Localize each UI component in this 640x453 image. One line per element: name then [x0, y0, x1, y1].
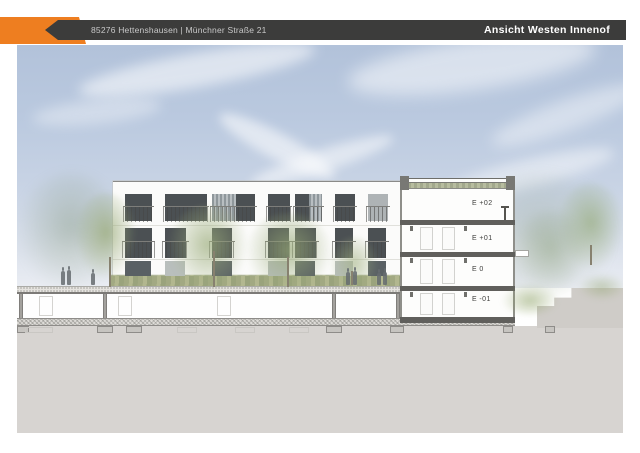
person-silhouette [377, 273, 381, 285]
garage-column [19, 294, 23, 318]
person-silhouette [383, 272, 387, 285]
wall-tick [410, 258, 413, 263]
bush [577, 273, 623, 299]
view-title: Ansicht Westen Innenof [484, 24, 610, 36]
garage-column [332, 294, 336, 318]
tree-trunk [590, 245, 592, 265]
pad-footing [503, 326, 513, 333]
wall-tick [464, 226, 467, 231]
earth-mass [17, 326, 623, 433]
rain-pipe [504, 207, 506, 220]
tree-canopy [245, 213, 333, 295]
wall-tick [464, 258, 467, 263]
header-bar: 85276 Hettenshausen | Münchner Straße 21… [45, 20, 626, 40]
tree-trunk [287, 257, 289, 287]
project-address: 85276 Hettenshausen | Münchner Straße 21 [91, 25, 267, 35]
balcony-railing-upper [333, 206, 357, 222]
garage-column [103, 294, 107, 318]
buried-footing-outline [25, 327, 53, 333]
green-roof-band [402, 182, 513, 189]
person-silhouette [353, 271, 357, 285]
garage-door-outline [39, 296, 53, 316]
buried-footing-outline [235, 327, 255, 333]
wall-tick [464, 292, 467, 297]
person-silhouette [91, 273, 95, 285]
pad-footing [390, 326, 404, 333]
interior-door-outline [420, 293, 433, 315]
tree-canopy [167, 205, 249, 293]
rain-pipe-bracket [501, 206, 509, 208]
elevation-drawing: E +02 E +01 E 0 E -01 [17, 45, 623, 433]
person-silhouette [67, 270, 71, 285]
wall-tick [410, 226, 413, 231]
pad-footing [545, 326, 555, 333]
floor-label-e01: E +01 [472, 235, 514, 242]
floor-slab [400, 286, 515, 291]
bottom-slab [400, 317, 515, 323]
pad-footing [326, 326, 342, 333]
interior-door-outline [420, 227, 433, 250]
garage-door-outline [118, 296, 132, 316]
interior-door-outline [442, 293, 455, 315]
tree-canopy [329, 237, 379, 295]
canopy-slab [515, 250, 529, 257]
bush [501, 283, 559, 315]
wall-tick [410, 292, 413, 297]
pad-footing [97, 326, 113, 333]
roof-parapet [400, 176, 409, 190]
pad-footing [126, 326, 142, 333]
floor-slab [400, 252, 515, 257]
interior-door-outline [442, 259, 455, 284]
garage-door-outline [217, 296, 231, 316]
buried-footing-outline [289, 327, 309, 333]
buried-footing-outline [177, 327, 197, 333]
tree-trunk [109, 257, 111, 287]
balcony-railing-upper [366, 206, 390, 222]
tree-canopy [75, 193, 137, 281]
tree-trunk [213, 251, 215, 287]
presentation-page: 85276 Hettenshausen | Münchner Straße 21… [0, 0, 640, 453]
floor-label-e0: E 0 [472, 266, 514, 273]
roof-parapet [506, 176, 515, 190]
person-silhouette [346, 272, 350, 285]
interior-door-outline [442, 227, 455, 250]
person-silhouette [61, 271, 65, 285]
building-section-cut: E +02 E +01 E 0 E -01 [400, 178, 515, 322]
interior-door-outline [420, 259, 433, 284]
floor-slab [400, 220, 515, 225]
